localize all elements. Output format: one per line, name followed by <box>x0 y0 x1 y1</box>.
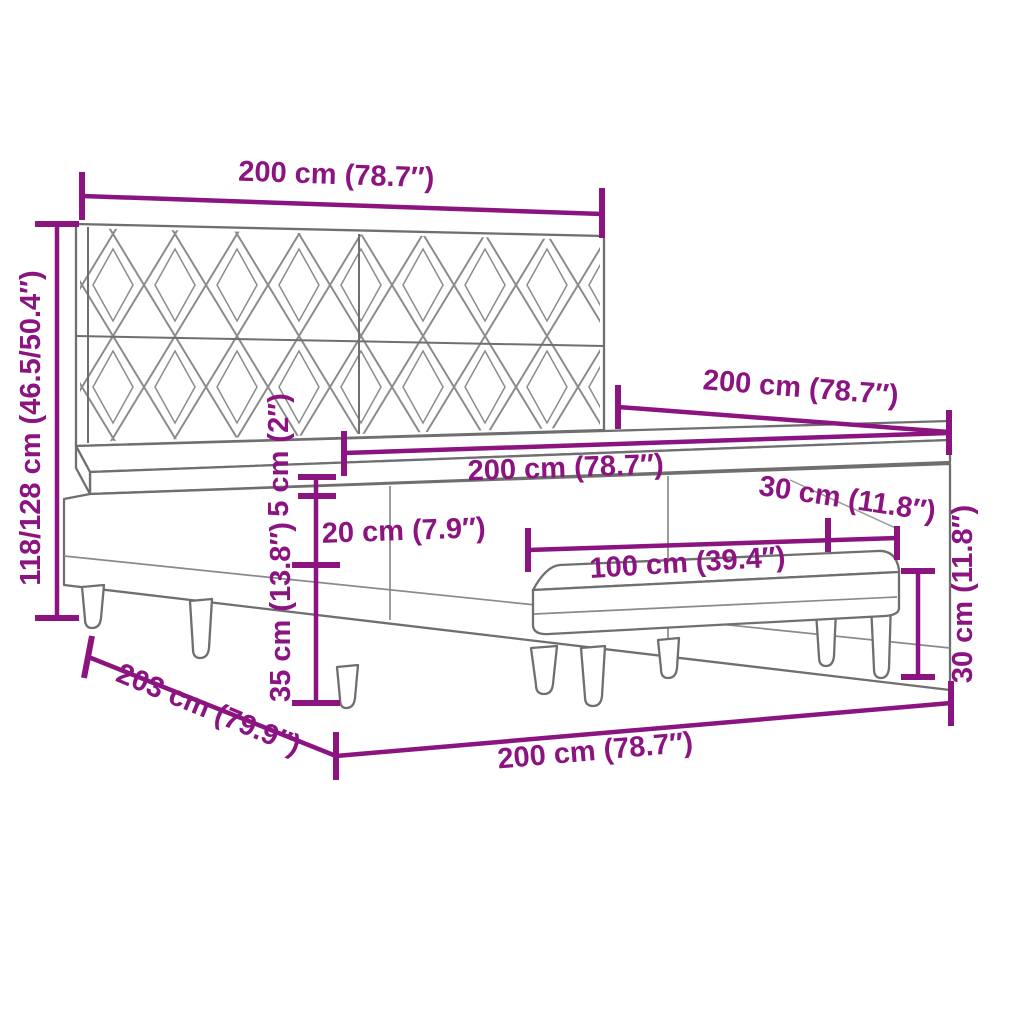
dim-label-bed-height: 118/128 cm (46.5/50.4″) <box>15 270 47 585</box>
dim-label-mattress-top-height: 5 cm (2″) <box>263 393 295 517</box>
bench-leg <box>658 638 679 678</box>
bench-leg <box>531 646 557 694</box>
bed-leg <box>82 585 104 628</box>
headboard <box>76 224 604 446</box>
dim-label-bench-height: 30 cm (11.8″) <box>947 505 979 683</box>
dim-bed-width-bottom: 200 cm (78.7″) <box>336 681 951 780</box>
dim-label-mattress-width: 200 cm (78.7″) <box>467 449 664 488</box>
dim-label-base-lower-height: 35 cm (13.8″) <box>265 522 297 702</box>
dimension-diagram-page: 200 cm (78.7″) 118/128 cm (46.5/50.4″) 2… <box>0 0 1024 1024</box>
bed-leg <box>190 599 212 658</box>
dim-bed-depth-bottom: 203 cm (79.9″) <box>84 636 336 762</box>
dim-label-headboard-width: 200 cm (78.7″) <box>238 156 435 195</box>
bed-dimension-diagram: 200 cm (78.7″) 118/128 cm (46.5/50.4″) 2… <box>0 0 1024 1024</box>
dim-tick <box>84 636 92 678</box>
dim-label-base-upper-height: 20 cm (7.9″) <box>321 512 486 550</box>
headboard-diamond-pattern <box>80 228 600 442</box>
bed-leg <box>337 665 358 708</box>
bench-leg <box>581 646 605 706</box>
dim-line <box>82 196 602 214</box>
dim-label-bed-depth-top: 200 cm (78.7″) <box>702 364 900 412</box>
